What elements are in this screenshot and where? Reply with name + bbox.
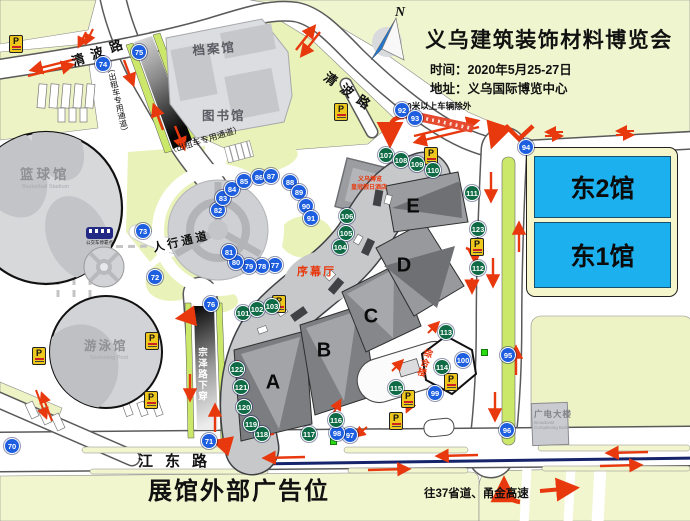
parking-icon: P xyxy=(32,347,46,365)
ad-marker-115[interactable]: 115 xyxy=(388,380,404,396)
parking-icon: P xyxy=(144,391,158,409)
ad-marker-104[interactable]: 104 xyxy=(332,239,348,255)
south-gate-loop xyxy=(423,417,455,437)
road-label-jiangdong: 江东路 xyxy=(138,454,219,470)
hotel-label-line2: 皇冠假日酒店 xyxy=(338,185,400,191)
parking-icon: P xyxy=(401,390,415,408)
green-marker-square xyxy=(481,349,488,356)
bus-icon xyxy=(86,227,113,239)
expo-address: 地址：义乌国际博览中心 xyxy=(430,83,568,96)
parking-icon: P xyxy=(470,238,484,256)
ad-marker-113[interactable]: 113 xyxy=(438,324,454,340)
ad-marker-112[interactable]: 112 xyxy=(470,260,486,276)
hall-label-A: A xyxy=(266,372,280,395)
ad-marker-114[interactable]: 114 xyxy=(434,359,450,375)
expo-map: 义乌建筑装饰材料博览会 时间：2020年5月25-27日 地址：义乌国际博览中心… xyxy=(0,0,690,521)
ad-marker-96[interactable]: 96 xyxy=(499,422,515,438)
ad-marker-111[interactable]: 111 xyxy=(464,185,480,201)
broadcast-building-label: 广电大楼 xyxy=(534,410,572,419)
ad-marker-76[interactable]: 76 xyxy=(203,296,219,312)
hall-label-C: C xyxy=(364,306,378,329)
ad-marker-109[interactable]: 109 xyxy=(409,156,425,172)
road-label-zongze-tunnel-lower: 宗泽路下穿 xyxy=(196,347,206,402)
ad-marker-94[interactable]: 94 xyxy=(518,139,534,155)
compass-north-label: N xyxy=(395,6,405,21)
parking-icon: P xyxy=(444,373,458,391)
hall-label-B: B xyxy=(317,340,331,363)
ad-marker-72[interactable]: 72 xyxy=(147,269,163,285)
roundabout xyxy=(84,247,124,287)
hotel-label-line1: 义乌博览 xyxy=(346,177,394,183)
ad-marker-91[interactable]: 91 xyxy=(303,210,319,226)
ad-marker-100[interactable]: 100 xyxy=(455,352,471,368)
expo-time: 时间：2020年5月25-27日 xyxy=(430,64,572,77)
parking-icon: P xyxy=(9,35,23,53)
parking-icon: P xyxy=(145,332,159,350)
prologue-hall-label: 序幕厅 xyxy=(297,267,336,279)
hall-label-D: D xyxy=(397,255,411,278)
swimming-pool-label: 游泳馆 xyxy=(84,340,128,353)
ad-marker-70[interactable]: 70 xyxy=(4,438,20,454)
ad-marker-107[interactable]: 107 xyxy=(378,147,394,163)
ad-marker-93[interactable]: 93 xyxy=(407,110,423,126)
ad-marker-120[interactable]: 120 xyxy=(236,399,252,415)
highway-direction-note: 往37省道、甬金高速 xyxy=(424,488,529,500)
ad-marker-71[interactable]: 71 xyxy=(201,433,217,449)
basketball-stadium-label-en: Basketball Stadium xyxy=(22,185,69,191)
basketball-stadium-label: 篮球馆 xyxy=(20,168,70,182)
ad-marker-103[interactable]: 103 xyxy=(264,298,280,314)
bus-stop-label: 公交车停靠点 xyxy=(86,241,113,246)
page-title: 义乌建筑装饰材料博览会 xyxy=(418,30,680,52)
ad-marker-117[interactable]: 117 xyxy=(301,426,317,442)
swimming-pool-label-en: Swimming Pool xyxy=(90,356,128,362)
ad-marker-85[interactable]: 85 xyxy=(236,173,252,189)
ad-marker-95[interactable]: 95 xyxy=(500,347,516,363)
ad-marker-74[interactable]: 74 xyxy=(95,56,111,72)
ad-marker-99[interactable]: 99 xyxy=(427,385,443,401)
median-strip xyxy=(502,157,515,445)
ad-marker-123[interactable]: 123 xyxy=(470,221,486,237)
ad-marker-110[interactable]: 110 xyxy=(425,162,441,178)
ad-marker-122[interactable]: 122 xyxy=(229,361,245,377)
ad-marker-106[interactable]: 106 xyxy=(339,208,355,224)
parking-icon: P xyxy=(334,103,348,121)
parking-icon: P xyxy=(389,412,403,430)
ad-marker-81[interactable]: 81 xyxy=(221,244,237,260)
ad-marker-102[interactable]: 102 xyxy=(249,301,265,317)
ad-marker-121[interactable]: 121 xyxy=(233,379,249,395)
east-hall-1[interactable]: 东1馆 xyxy=(534,222,671,288)
ad-marker-87[interactable]: 87 xyxy=(263,168,279,184)
ad-marker-73[interactable]: 73 xyxy=(135,223,151,239)
library-label: 图书馆 xyxy=(202,110,246,123)
east-hall-2[interactable]: 东2馆 xyxy=(534,156,671,218)
footer-banner-title: 展馆外部广告位 xyxy=(148,479,330,504)
broadcast-building-label-en: Broadcast Complexing Build xyxy=(534,421,576,430)
ad-marker-119[interactable]: 119 xyxy=(243,416,259,432)
ad-marker-105[interactable]: 105 xyxy=(338,225,354,241)
hall-label-E: E xyxy=(406,196,419,219)
ad-marker-116[interactable]: 116 xyxy=(328,412,344,428)
ad-marker-75[interactable]: 75 xyxy=(131,44,147,60)
ad-marker-108[interactable]: 108 xyxy=(393,152,409,168)
east-halls-block: 东2馆 东1馆 xyxy=(526,147,678,297)
